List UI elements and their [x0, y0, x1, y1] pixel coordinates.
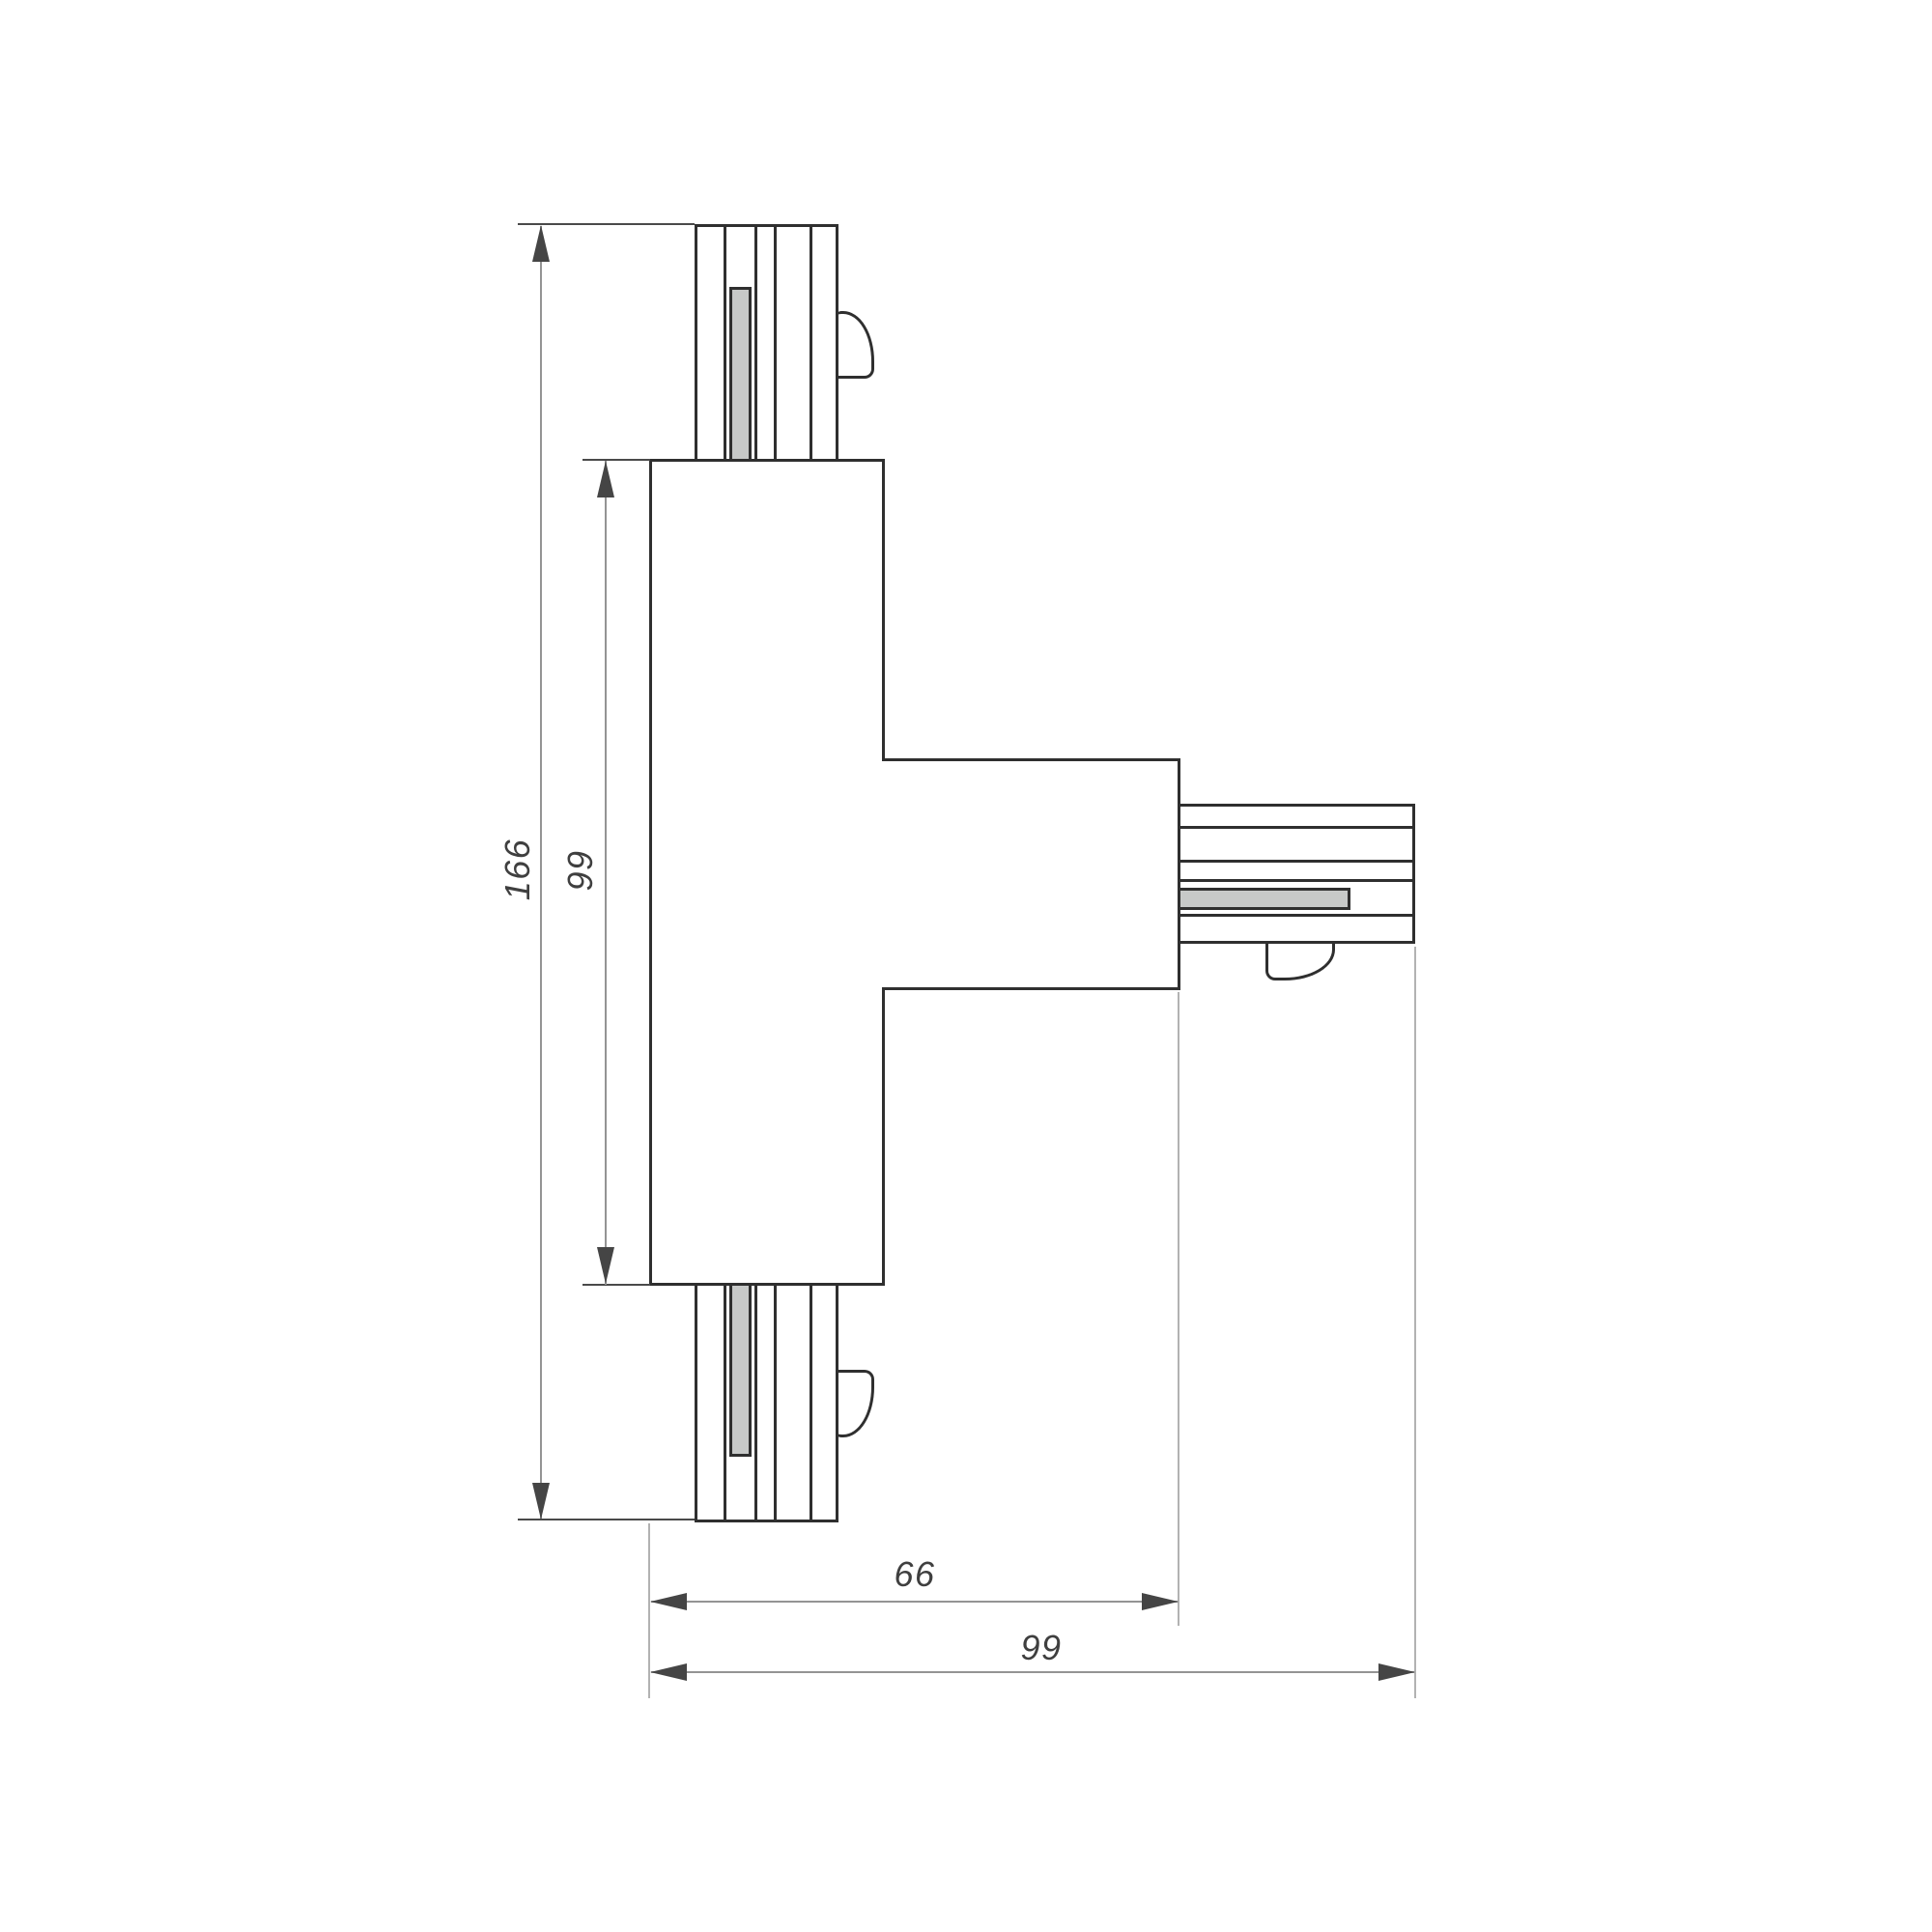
top-connector	[695, 224, 838, 462]
latch-tab-top-connector	[836, 311, 874, 379]
dim-arrowhead-left	[650, 1663, 687, 1681]
contact-strip-top	[729, 287, 752, 459]
drawing-canvas: 166 99 66 99	[0, 0, 1932, 1932]
groove-line	[754, 227, 757, 459]
latch-tab-right-connector	[1265, 942, 1335, 980]
groove-line	[724, 1286, 726, 1520]
dim-arrowhead-down	[597, 1247, 614, 1284]
dim-overall-height-label: 166	[497, 838, 538, 901]
groove-line	[1180, 914, 1412, 917]
t-body-vertical-bar	[649, 459, 885, 1286]
groove-line	[724, 227, 726, 459]
dim-body-height-label: 99	[560, 849, 601, 891]
latch-tab-bottom-connector	[836, 1370, 874, 1437]
dim-arrowhead-right	[1142, 1593, 1179, 1610]
extension-line	[582, 459, 650, 461]
contact-strip-bottom	[729, 1286, 752, 1457]
dim-arrowhead-right	[1378, 1663, 1415, 1681]
dim-arrowhead-left	[650, 1593, 687, 1610]
groove-line	[774, 1286, 777, 1520]
groove-line	[1180, 860, 1412, 863]
dim-arrowhead-up	[532, 225, 550, 262]
extension-line	[1414, 947, 1416, 1698]
dim-overall-height-line	[540, 226, 542, 1519]
groove-line	[810, 1286, 812, 1520]
t-body-side-arm	[882, 758, 1180, 990]
groove-line	[810, 227, 812, 459]
dim-overall-width-label: 99	[1020, 1628, 1062, 1668]
dim-arm-reach-line	[651, 1601, 1178, 1603]
groove-line	[774, 227, 777, 459]
dim-arrowhead-up	[597, 461, 614, 497]
extension-line	[582, 1284, 650, 1286]
groove-line	[754, 1286, 757, 1520]
bottom-connector	[695, 1283, 838, 1522]
extension-line	[1178, 992, 1179, 1626]
groove-line	[1180, 879, 1412, 882]
groove-line	[1180, 826, 1412, 829]
dim-arrowhead-down	[532, 1483, 550, 1520]
dim-overall-width-line	[651, 1671, 1414, 1673]
dim-arm-reach-label: 66	[894, 1554, 935, 1595]
dim-body-height-line	[605, 461, 607, 1285]
contact-strip-right	[1180, 888, 1350, 910]
right-connector	[1178, 804, 1415, 944]
